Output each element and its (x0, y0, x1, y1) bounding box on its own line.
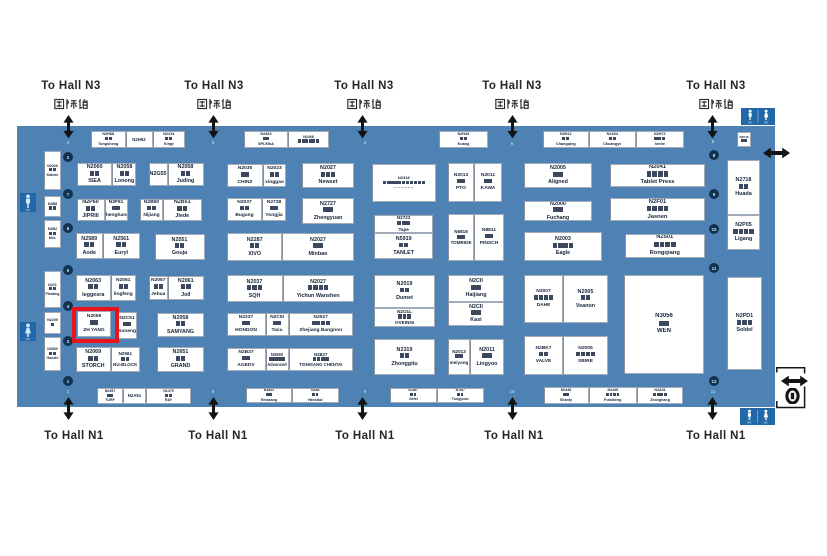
svg-text:WC: WC (764, 421, 768, 425)
svg-text:WC: WC (26, 337, 31, 341)
svg-text:WC: WC (764, 121, 768, 125)
svg-text:WC: WC (747, 421, 751, 425)
svg-text:WC: WC (748, 121, 752, 125)
svg-text:WC: WC (26, 208, 31, 212)
